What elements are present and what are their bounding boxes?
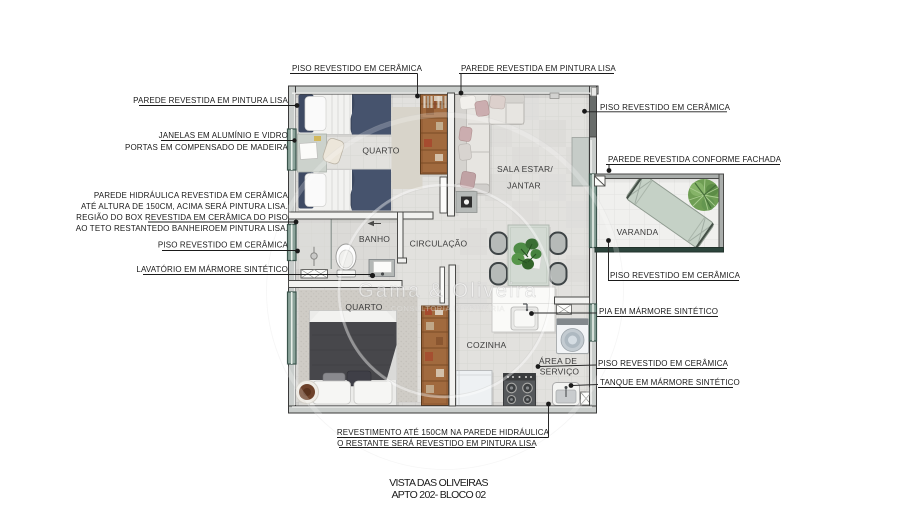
svg-text:AO TETO RESTANTEDO BANHEIROEM: AO TETO RESTANTEDO BANHEIROEM PINTURA LI…	[76, 224, 288, 233]
svg-text:PISO REVESTIDO EM CERÂMICA: PISO REVESTIDO EM CERÂMICA	[600, 103, 731, 112]
svg-text:CONSULTORIA IMOBILIÁRIA: CONSULTORIA IMOBILIÁRIA	[391, 304, 505, 313]
svg-text:COZINHA: COZINHA	[467, 340, 507, 350]
svg-text:PAREDE REVESTIDA EM PINTURA LI: PAREDE REVESTIDA EM PINTURA LISA	[461, 64, 616, 73]
svg-text:LAVATÓRIO EM MÁRMORE SINTÉTICO: LAVATÓRIO EM MÁRMORE SINTÉTICO	[136, 265, 288, 274]
svg-text:APTO 202- BLOCO 02: APTO 202- BLOCO 02	[391, 489, 486, 501]
svg-text:PORTAS EM COMPENSADO DE MADEIR: PORTAS EM COMPENSADO DE MADEIRA	[125, 143, 289, 152]
svg-text:JANTAR: JANTAR	[507, 181, 541, 191]
svg-text:BANHO: BANHO	[359, 234, 390, 244]
svg-text:Gama & Oliveira: Gama & Oliveira	[358, 280, 538, 302]
svg-text:CIRCULAÇÃO: CIRCULAÇÃO	[410, 239, 468, 249]
svg-text:VISTA DAS OLIVEIRAS: VISTA DAS OLIVEIRAS	[389, 477, 488, 489]
svg-text:PAREDE REVESTIDA EM PINTURA LI: PAREDE REVESTIDA EM PINTURA LISA	[133, 96, 288, 105]
svg-text:REGIÃO DO BOX REVESTIDA EM CER: REGIÃO DO BOX REVESTIDA EM CERÂMICA DO P…	[76, 213, 288, 222]
svg-text:REVESTIMENTO ATÉ 150CM NA PARE: REVESTIMENTO ATÉ 150CM NA PAREDE HIDRÁUL…	[337, 428, 550, 437]
svg-text:O RESTANTE SERÁ REVESTIDO EM P: O RESTANTE SERÁ REVESTIDO EM PINTURA LIS…	[337, 439, 537, 448]
svg-text:VARANDA: VARANDA	[617, 227, 659, 237]
svg-text:ATÉ ALTURA DE 150CM, ACIMA SER: ATÉ ALTURA DE 150CM, ACIMA SERÁ PINTURA …	[81, 202, 288, 211]
svg-text:PISO REVESTIDO EM CERÂMICA: PISO REVESTIDO EM CERÂMICA	[292, 64, 423, 73]
svg-text:QUARTO: QUARTO	[362, 146, 399, 156]
svg-text:PISO REVESTIDO EM CERÂMICA: PISO REVESTIDO EM CERÂMICA	[158, 241, 289, 250]
svg-text:JANELAS EM ALUMÍNIO E VIDRO: JANELAS EM ALUMÍNIO E VIDRO	[159, 131, 288, 140]
svg-text:ÁREA DE: ÁREA DE	[539, 356, 577, 366]
svg-text:PIA EM MÁRMORE SINTÉTICO: PIA EM MÁRMORE SINTÉTICO	[599, 307, 718, 316]
svg-text:SERVIÇO: SERVIÇO	[540, 367, 580, 377]
svg-text:PAREDE HIDRÁULICA REVESTIDA EM: PAREDE HIDRÁULICA REVESTIDA EM CERÂMICA	[94, 191, 289, 200]
svg-text:PAREDE REVESTIDA CONFORME FACH: PAREDE REVESTIDA CONFORME FACHADA	[608, 155, 782, 164]
svg-text:PISO REVESTIDO EM CERÂMICA: PISO REVESTIDO EM CERÂMICA	[598, 359, 729, 368]
svg-text:SALA ESTAR/: SALA ESTAR/	[497, 164, 553, 174]
svg-text:PISO REVESTIDO EM CERÂMICA: PISO REVESTIDO EM CERÂMICA	[610, 271, 741, 280]
svg-text:TANQUE EM MÁRMORE SINTÉTICO: TANQUE EM MÁRMORE SINTÉTICO	[600, 378, 740, 387]
svg-text:QUARTO: QUARTO	[345, 302, 382, 312]
